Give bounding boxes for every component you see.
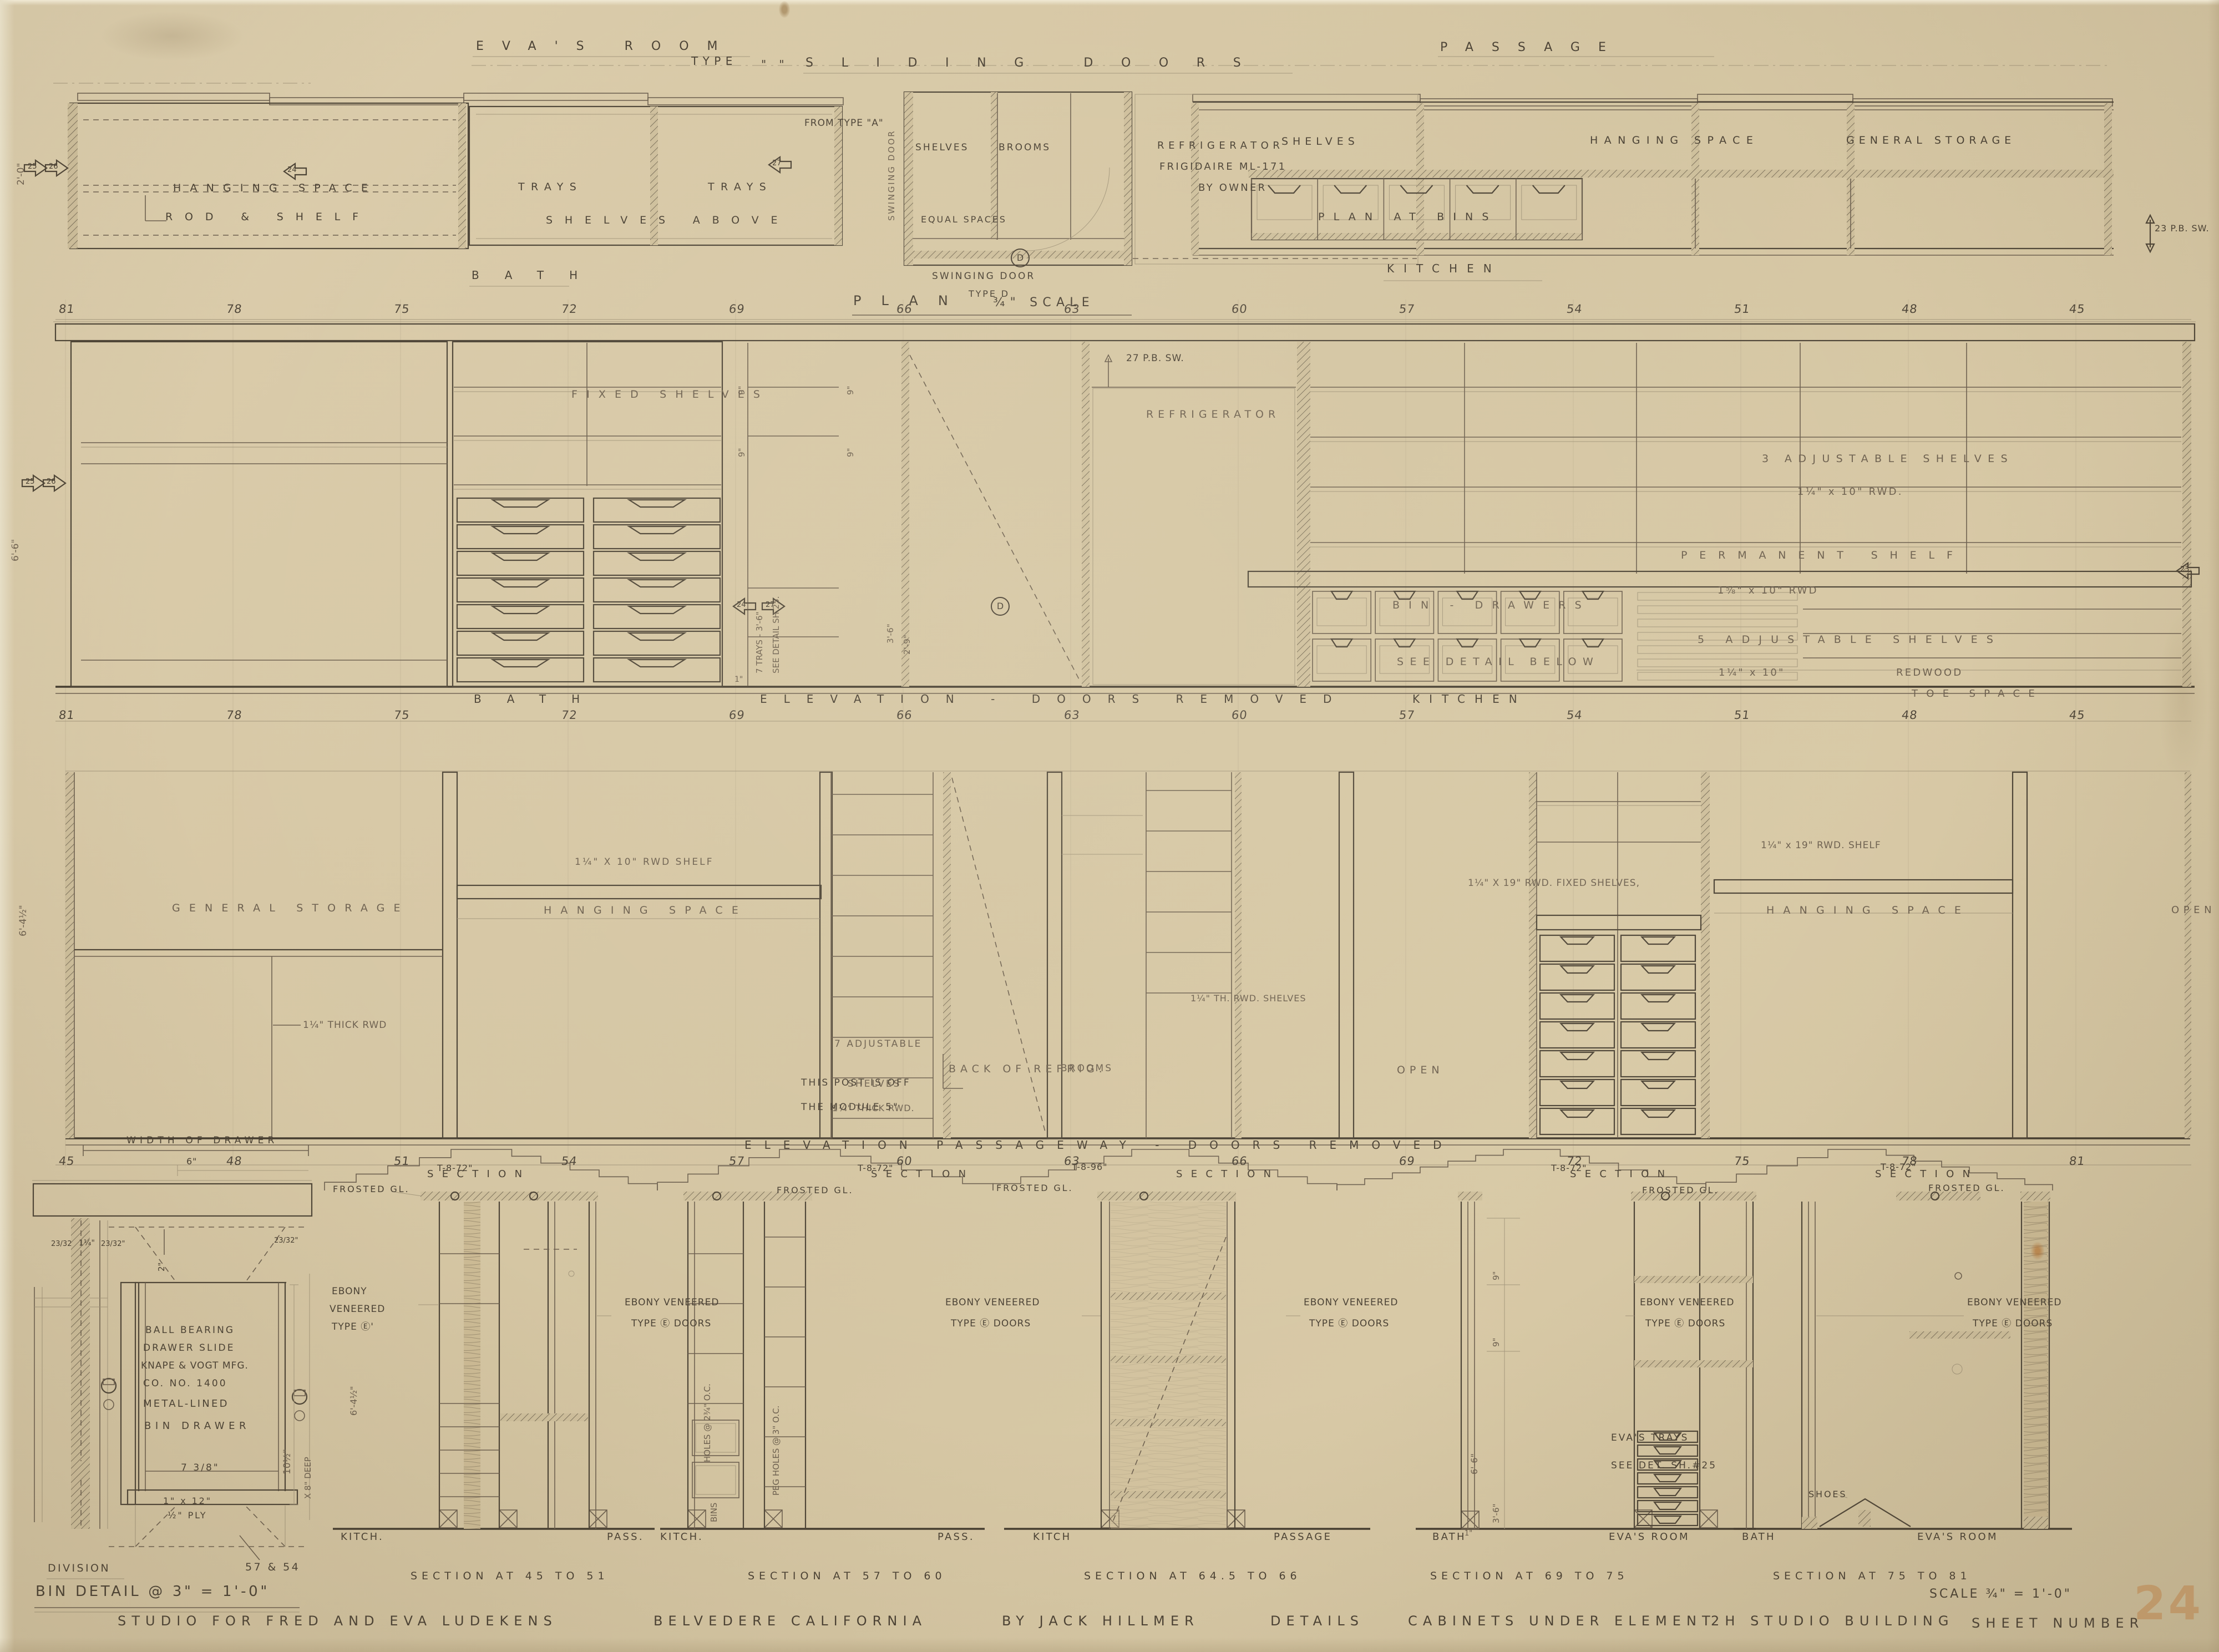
grid-number-row2-2: 75	[393, 709, 411, 721]
label-ebony-doors-s4a: EBONY VENEERED	[1640, 1298, 1734, 1308]
label-division: DIVISION	[48, 1563, 110, 1574]
label-dim-2-0: 2'-0"	[17, 163, 27, 185]
grid-number-row1-4: 69	[728, 303, 746, 315]
label-section-callout-3: SECTION	[1176, 1169, 1279, 1180]
label-3-adjustable-shelves: 3 ADJUSTABLE SHELVES	[1762, 454, 2014, 465]
label-frac-1-quarter: 1¼"	[79, 1239, 95, 1248]
label-bin-drawers: BIN - DRAWERS	[1392, 600, 1590, 611]
label-t8-72-s1: T-8-72"	[437, 1164, 473, 1173]
grid-number-row2-7: 60	[1231, 709, 1248, 721]
grid-number-row1-7: 60	[1231, 303, 1248, 315]
label-scale-note: SCALE ¾" = 1'-0"	[1929, 1588, 2072, 1600]
label-trays-2: TRAYS	[708, 182, 772, 193]
label-frosted-s3: FROSTED GL.	[996, 1184, 1073, 1193]
label-kitchen-elev: KITCHEN	[1412, 693, 1527, 705]
label-elevation-passageway: ELEVATION PASSAGEWAY - DOORS REMOVED	[744, 1139, 1455, 1151]
label-57-and-54: 57 & 54	[245, 1562, 300, 1573]
grid-number-row1-6: 63	[1063, 303, 1081, 315]
label-ebony-doors-s5b: TYPE Ⓔ DOORS	[1973, 1319, 2053, 1329]
paper-edge	[0, 0, 14, 1652]
marker-24-plan: 24	[287, 166, 297, 174]
label-hanging-space-c1: HANGING SPACE	[173, 183, 377, 194]
label-shelves-kitchen: SHELVES	[1281, 136, 1359, 148]
label-swinging-door-vert: SWINGING DOOR	[888, 130, 896, 221]
grid-number-row3-2: 51	[393, 1155, 411, 1167]
label-dim-3-6: 3'-6"	[886, 624, 895, 643]
label-bin-detail-title: BIN DETAIL @ 3" = 1'-0"	[36, 1584, 270, 1599]
label-kitch-s2: KITCH.	[660, 1532, 703, 1543]
grid-number-row2-4: 69	[728, 709, 746, 721]
label-permanent-shelf: PERMANENT SHELF	[1681, 550, 1965, 561]
grid-number-row1-11: 48	[1901, 303, 1918, 315]
label-metal-lined: METAL-LINED	[143, 1399, 229, 1410]
label-kitchen-plan: KITCHEN	[1387, 263, 1501, 275]
label-dim-9-2: 9"	[738, 448, 747, 457]
grid-number-row3-6: 63	[1063, 1155, 1081, 1167]
label-from-type-a: FROM TYPE "A"	[804, 119, 884, 129]
label-rod-and-shelf: ROD & SHELF	[165, 212, 371, 223]
label-shelves-above: SHELVES ABOVE	[546, 215, 789, 226]
grid-number-row2-0: 81	[58, 709, 75, 721]
label-see-det-sh25: SEE DET. SH.#25	[1611, 1461, 1717, 1471]
grid-number-row3-10: 75	[1734, 1155, 1751, 1167]
marker-26-plan: 26	[49, 163, 58, 171]
grid-number-row1-2: 75	[393, 303, 411, 315]
grid-number-row2-8: 57	[1399, 709, 1416, 721]
label-dim-1: 1"	[734, 676, 743, 684]
label-swinging-door-d: SWINGING DOOR	[932, 272, 1035, 282]
label-dim-2-vert: 2"	[158, 1263, 166, 1271]
label-dim-10-half-vert: 10½"	[283, 1449, 293, 1474]
label-t8-72-s2: T-8-72"	[858, 1164, 893, 1173]
label-pb-switch-23: 23 P.B. SW.	[2155, 224, 2210, 234]
label-ebony-doors-s1b: TYPE Ⓔ DOORS	[631, 1319, 711, 1329]
label-hanging-space-kitchen: HANGING SPACE	[1590, 135, 1759, 146]
label-ebony-s1b: VENEERED	[330, 1305, 385, 1315]
label-dim-9-3: 9"	[847, 386, 855, 395]
label-section-title-2: SECTION AT 57 TO 60	[748, 1571, 946, 1582]
label-evas-room-s5: EVA'S ROOM	[1917, 1532, 1998, 1543]
label-type-quotes: " "	[761, 59, 789, 70]
grid-number-row2-3: 72	[561, 709, 578, 721]
grid-number-row3-0: 45	[58, 1155, 75, 1167]
label-six-inch: 6"	[186, 1157, 197, 1167]
label-evas-trays: EVA'S TRAYS	[1611, 1433, 1689, 1443]
label-ebony-doors-s3rb: TYPE Ⓔ DOORS	[1309, 1319, 1389, 1329]
label-ball-bearing: BALL BEARING	[145, 1326, 235, 1336]
grid-number-row2-6: 63	[1063, 709, 1081, 721]
label-evas-room: EVA'S ROOM	[476, 40, 736, 53]
label-section-title-4: SECTION AT 69 TO 75	[1430, 1571, 1629, 1582]
label-post-note-2: THE MODULE 5"	[801, 1103, 899, 1113]
label-co-no-1400: CO. NO. 1400	[143, 1379, 227, 1389]
label-passage-s3: PASSAGE	[1274, 1532, 1332, 1543]
grid-number-row1-1: 78	[226, 303, 243, 315]
label-sheet-number: 24	[2134, 1579, 2203, 1628]
label-see-detail-below: SEE DETAIL BELOW	[1397, 657, 1599, 668]
label-evas-room-s4: EVA'S ROOM	[1609, 1532, 1690, 1543]
label-post-note-1: THIS POST IS OFF	[801, 1078, 911, 1088]
marker-d-circle-2: D	[991, 597, 1010, 616]
grid-number-row1-3: 72	[561, 303, 578, 315]
label-kitch-s3: KITCH	[1033, 1532, 1071, 1543]
label-rwd-shelf-10: 1¼" X 10" RWD SHELF	[575, 858, 714, 868]
label-section-title-5: SECTION AT 75 TO 81	[1773, 1571, 1972, 1582]
label-ebony-doors-s5a: EBONY VENEERED	[1967, 1298, 2061, 1308]
label-title-details: DETAILS	[1270, 1614, 1364, 1628]
label-general-storage-plan: GENERAL STORAGE	[1846, 135, 2015, 146]
label-thick-rwd: 1¼" THICK RWD	[303, 1021, 387, 1031]
label-frigidaire: FRIGIDAIRE ML-171	[1159, 162, 1286, 173]
label-refrigerator-elev: REFRIGERATOR	[1146, 409, 1280, 420]
label-toe-space: TOE SPACE	[1912, 689, 2043, 700]
label-bath-elev: BATH	[474, 693, 605, 705]
grid-number-row2-9: 54	[1566, 709, 1583, 721]
grid-number-row3-11: 78	[1901, 1155, 1918, 1167]
label-dim-6-6-s4: 6'-6"	[1470, 1453, 1480, 1474]
label-bins-vert: BINS	[710, 1503, 719, 1522]
label-frac-23-32-a: 23/32	[51, 1240, 72, 1248]
drawing-linework	[0, 0, 2219, 1652]
label-refrigerator-plan: REFRIGERATOR	[1157, 141, 1284, 151]
label-section-title-1: SECTION AT 45 TO 51	[411, 1571, 609, 1582]
label-ebony-s1a: EBONY	[332, 1287, 367, 1297]
label-dim-8-deep-vert: X 8" DEEP	[304, 1457, 313, 1499]
grid-number-row2-5: 66	[896, 709, 913, 721]
grid-number-row3-5: 60	[896, 1155, 913, 1167]
label-frac-23-32-b: 23/32"	[101, 1240, 125, 1248]
grid-number-row3-8: 69	[1399, 1155, 1416, 1167]
marker-d-circle-1: D	[1011, 249, 1030, 267]
label-bath-s5: BATH	[1742, 1532, 1776, 1543]
label-sliding-doors: SLIDING DOORS	[805, 57, 1269, 69]
label-dim-2-9: 2'-9"	[903, 635, 912, 655]
label-ebony-doors-s3lb: TYPE Ⓔ DOORS	[951, 1319, 1031, 1329]
label-general-storage-2: GENERAL STORAGE	[172, 903, 409, 914]
blueprint-sheet: EVA'S ROOMTYPE" "SLIDING DOORSPASSAGEHAN…	[0, 0, 2219, 1652]
marker-25-plan: 25	[28, 163, 37, 171]
label-bath-s4: BATH	[1432, 1532, 1466, 1543]
label-rwd-shelf-19: 1¼" x 19" RWD. SHELF	[1761, 841, 1881, 851]
label-fixed-shelves-19: 1¼" X 19" RWD. FIXED SHELVES,	[1468, 879, 1640, 889]
grid-number-row3-9: 72	[1566, 1155, 1583, 1167]
label-ebony-doors-s3ra: EBONY VENEERED	[1304, 1298, 1398, 1308]
label-dim-3-6-s4: 3'-6"	[1492, 1503, 1501, 1523]
label-drawer-slide: DRAWER SLIDE	[143, 1344, 235, 1354]
paper-edge	[0, 0, 2219, 6]
grid-number-row3-4: 57	[728, 1155, 746, 1167]
label-equal-spaces: EQUAL SPACES	[921, 215, 1007, 225]
label-dim-6-4h-left: 6'-4½"	[19, 905, 29, 936]
label-frac-23-32-c: 23/32"	[274, 1237, 298, 1245]
grid-number-row1-5: 66	[896, 303, 913, 315]
label-title-project: STUDIO FOR FRED AND EVA LUDEKENS	[118, 1614, 558, 1628]
label-frosted-s1: FROSTED GL.	[333, 1185, 409, 1194]
label-3-adj-dim: 1¼" x 10" RWD.	[1797, 487, 1903, 498]
marker-26-elev: 26	[47, 478, 56, 486]
label-brooms-2: BROOMS	[1061, 1064, 1113, 1074]
label-half-ply: ½" PLY	[168, 1511, 207, 1521]
marker-25-elev: 25	[26, 478, 35, 486]
label-ebony-doors-s1a: EBONY VENEERED	[625, 1298, 719, 1308]
label-shelves-c3: SHELVES	[915, 143, 969, 153]
grid-number-row2-10: 51	[1734, 709, 1751, 721]
label-sheet-number-label: SHEET NUMBER	[1972, 1616, 2144, 1630]
grid-number-row3-1: 48	[226, 1155, 243, 1167]
label-title-location: BELVEDERE CALIFORNIA	[653, 1614, 927, 1628]
grid-number-row1-8: 57	[1399, 303, 1416, 315]
label-5-adj-dim: 1¼" x 10"	[1719, 668, 1785, 678]
label-type: TYPE	[691, 55, 737, 67]
label-open-1: OPEN	[1397, 1065, 1444, 1076]
label-redwood: REDWOOD	[1896, 668, 1963, 678]
label-title-element: 2H STUDIO BUILDING	[1711, 1614, 1954, 1628]
label-knape-vogt: KNAPE & VOGT MFG.	[141, 1361, 249, 1371]
label-trays-1: TRAYS	[518, 182, 582, 193]
label-dim-9-1: 9"	[738, 386, 747, 395]
label-bin-drawer: BIN DRAWER	[144, 1421, 250, 1432]
label-bath-plan: BATH	[472, 270, 603, 281]
grid-number-row3-7: 66	[1231, 1155, 1248, 1167]
label-frosted-s4: FROSTED GL.	[1642, 1186, 1719, 1195]
grid-number-row2-1: 78	[226, 709, 243, 721]
label-title-subject: CABINETS UNDER ELEMENT	[1408, 1614, 1716, 1628]
grid-number-row1-0: 81	[58, 303, 75, 315]
label-7-trays-vert: 7 TRAYS - 3'-6"	[756, 611, 764, 673]
label-holes-oc-vert: HOLES @ 2¾" O.C.	[703, 1384, 712, 1462]
label-th-rwd-shelves: 1¼" TH. RWD. SHELVES	[1190, 994, 1306, 1004]
label-dim-9-4: 9"	[847, 448, 855, 457]
label-passage: PASSAGE	[1440, 41, 1624, 54]
paper-edge	[0, 1638, 2219, 1652]
label-dim-9-s4b: 9"	[1492, 1338, 1501, 1347]
marker-27-elev: 27	[766, 601, 775, 609]
grid-number-row2-11: 48	[1901, 709, 1918, 721]
label-ebony-s1c: TYPE Ⓔ'	[332, 1322, 374, 1332]
label-ebony-doors-s3la: EBONY VENEERED	[945, 1298, 1040, 1308]
grid-number-row3-12: 81	[2069, 1155, 2086, 1167]
label-width-of-drawer: WIDTH OF DRAWER	[126, 1136, 278, 1146]
marker-27-plan: 27	[772, 160, 782, 168]
label-hanging-elev2: HANGING SPACE	[544, 905, 747, 916]
label-7-adjustable-1: 7 ADJUSTABLE	[834, 1040, 922, 1050]
label-peg-holes-vert: PEG HOLES @ 3" O.C.	[772, 1406, 781, 1496]
label-ebony-doors-s4b: TYPE Ⓔ DOORS	[1645, 1319, 1725, 1329]
label-frosted-s2: FROSTED GL.	[777, 1186, 853, 1195]
label-frosted-s5: FROSTED GL.	[1928, 1184, 2005, 1193]
grid-number-row3-3: 54	[561, 1155, 578, 1167]
grid-number-row2-12: 45	[2069, 709, 2086, 721]
grid-number-row1-10: 51	[1734, 303, 1751, 315]
label-section-title-3: SECTION AT 64.5 TO 66	[1084, 1571, 1301, 1582]
label-pass-s2: PASS.	[938, 1532, 975, 1543]
label-5-adjustable-shelves: 5 ADJUSTABLE SHELVES	[1698, 635, 2002, 646]
grid-number-row1-12: 45	[2069, 303, 2086, 315]
label-dim-6-4h-s1: 6'-4½"	[349, 1386, 359, 1416]
label-pass-s1: PASS.	[607, 1532, 644, 1543]
paper-edge	[2208, 0, 2219, 1652]
label-hanging-elev2-right: HANGING SPACE	[1766, 905, 1970, 916]
grid-number-row1-9: 54	[1566, 303, 1583, 315]
label-by-owner: BY OWNER	[1198, 183, 1266, 194]
label-brooms-c3: BROOMS	[999, 143, 1051, 153]
label-seven-three-eighths: 7 3/8"	[181, 1463, 220, 1473]
label-one-by-twelve: 1" x 12"	[163, 1497, 212, 1506]
label-dim-9-s4a: 9"	[1492, 1271, 1501, 1280]
label-plan-at-bins: PLAN AT BINS	[1318, 212, 1498, 223]
label-elevation-doors-removed: ELEVATION - DOORS REMOVED	[760, 693, 1348, 705]
marker-24-elev: 24	[737, 601, 746, 609]
label-kitch-s1: KITCH.	[341, 1532, 384, 1543]
label-shoes: SHOES	[1808, 1490, 1847, 1499]
label-permanent-dim: 1⅝" x 10" RWD	[1718, 586, 1818, 596]
marker-23-elev: 23	[2180, 566, 2190, 574]
label-pb-switch-27: 27 P.B. SW.	[1126, 354, 1184, 364]
label-title-architect: BY JACK HILLMER	[1002, 1614, 1199, 1628]
